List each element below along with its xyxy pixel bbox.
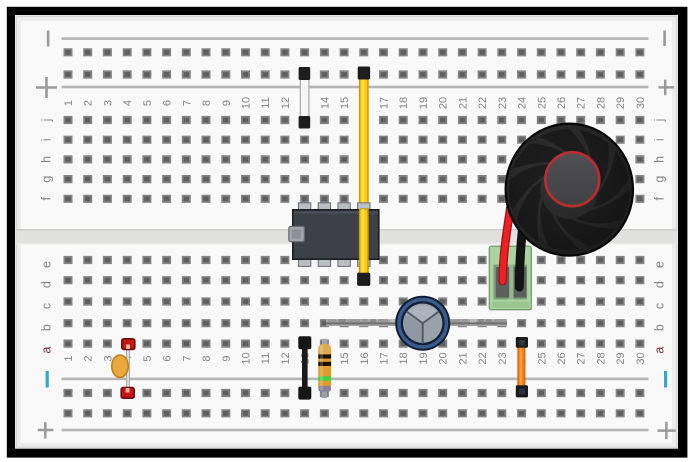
svg-text:11: 11: [260, 353, 272, 364]
svg-text:h: h: [653, 156, 667, 163]
svg-text:12: 12: [280, 352, 292, 364]
svg-text:21: 21: [457, 97, 469, 109]
svg-text:25: 25: [536, 352, 548, 364]
svg-text:28: 28: [595, 97, 607, 109]
svg-text:24: 24: [517, 97, 529, 109]
svg-text:e: e: [40, 261, 54, 268]
svg-text:5: 5: [142, 355, 154, 361]
svg-text:30: 30: [635, 352, 647, 364]
svg-text:17: 17: [379, 97, 391, 109]
svg-text:29: 29: [615, 97, 627, 109]
svg-text:19: 19: [418, 352, 430, 364]
svg-text:b: b: [40, 324, 54, 331]
svg-text:23: 23: [497, 97, 509, 109]
svg-text:26: 26: [556, 97, 568, 109]
svg-text:f: f: [653, 197, 667, 201]
svg-text:15: 15: [339, 352, 351, 364]
svg-text:28: 28: [595, 352, 607, 364]
svg-text:6: 6: [162, 355, 174, 361]
svg-text:9: 9: [221, 100, 233, 106]
svg-text:d: d: [653, 281, 667, 288]
svg-text:25: 25: [536, 97, 548, 109]
svg-text:f: f: [40, 197, 54, 201]
svg-text:1: 1: [63, 100, 75, 106]
svg-text:j: j: [653, 119, 667, 123]
svg-text:23: 23: [497, 352, 509, 364]
svg-text:i: i: [40, 138, 54, 141]
svg-text:22: 22: [477, 97, 489, 109]
svg-text:26: 26: [556, 352, 568, 364]
svg-text:5: 5: [142, 100, 154, 106]
svg-text:6: 6: [162, 100, 174, 106]
svg-text:g: g: [653, 176, 667, 183]
svg-text:17: 17: [379, 352, 391, 364]
svg-text:10: 10: [241, 97, 253, 109]
svg-text:g: g: [40, 176, 54, 183]
svg-text:22: 22: [477, 352, 489, 364]
svg-text:e: e: [653, 261, 667, 268]
svg-text:c: c: [40, 303, 54, 309]
svg-text:18: 18: [398, 352, 410, 364]
svg-text:8: 8: [201, 100, 213, 106]
svg-text:4: 4: [122, 100, 134, 106]
svg-text:27: 27: [576, 352, 588, 364]
svg-text:9: 9: [221, 355, 233, 361]
svg-text:b: b: [653, 324, 667, 331]
svg-text:15: 15: [339, 97, 351, 109]
svg-text:10: 10: [241, 352, 253, 364]
svg-text:29: 29: [615, 352, 627, 364]
svg-text:18: 18: [398, 97, 410, 109]
svg-text:19: 19: [418, 97, 430, 109]
svg-text:1: 1: [63, 355, 75, 361]
svg-text:30: 30: [635, 97, 647, 109]
svg-text:c: c: [653, 303, 667, 309]
svg-text:8: 8: [201, 355, 213, 361]
svg-text:a: a: [653, 347, 667, 354]
svg-text:i: i: [653, 138, 667, 141]
svg-text:11: 11: [260, 97, 272, 108]
svg-text:j: j: [40, 119, 54, 123]
svg-text:14: 14: [319, 97, 331, 109]
svg-text:16: 16: [359, 352, 371, 364]
svg-text:27: 27: [576, 97, 588, 109]
svg-text:3: 3: [102, 100, 114, 106]
svg-text:20: 20: [438, 352, 450, 364]
svg-text:h: h: [40, 156, 54, 163]
svg-text:21: 21: [457, 352, 469, 364]
svg-text:d: d: [40, 281, 54, 288]
svg-text:2: 2: [83, 355, 95, 361]
svg-text:12: 12: [280, 97, 292, 109]
svg-text:7: 7: [181, 355, 193, 361]
svg-text:2: 2: [83, 100, 95, 106]
svg-text:a: a: [40, 347, 54, 354]
svg-text:20: 20: [438, 97, 450, 109]
svg-text:7: 7: [181, 100, 193, 106]
